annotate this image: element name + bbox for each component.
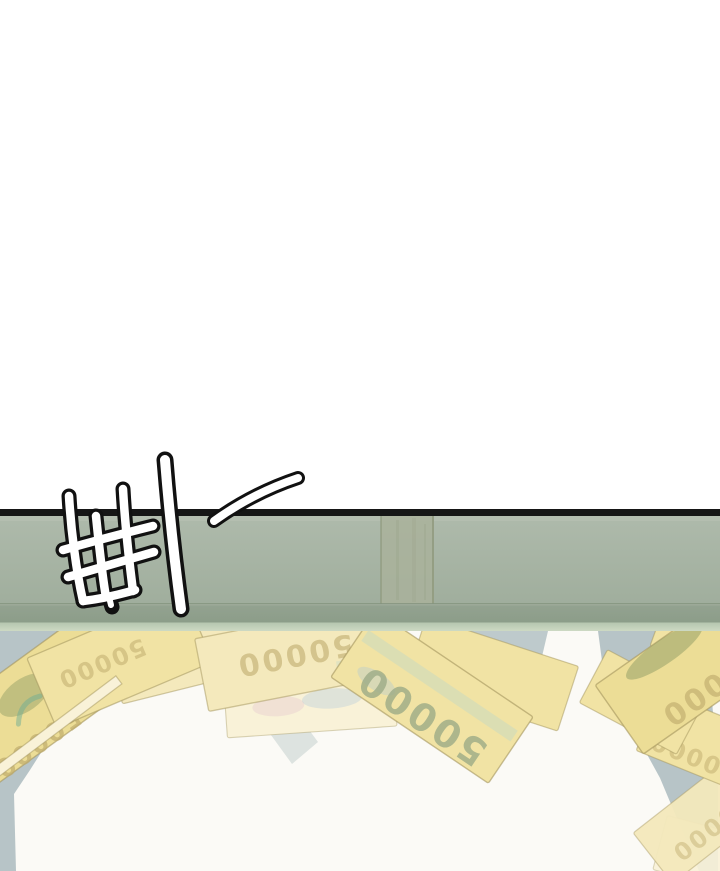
desk-tape-seam — [380, 516, 434, 604]
desk-edge-line — [0, 509, 720, 516]
webtoon-panel: 50000 50000 50000 5000 — [0, 0, 720, 871]
desk-front-light-strip — [0, 623, 720, 632]
desk-front-highlight — [0, 516, 720, 521]
